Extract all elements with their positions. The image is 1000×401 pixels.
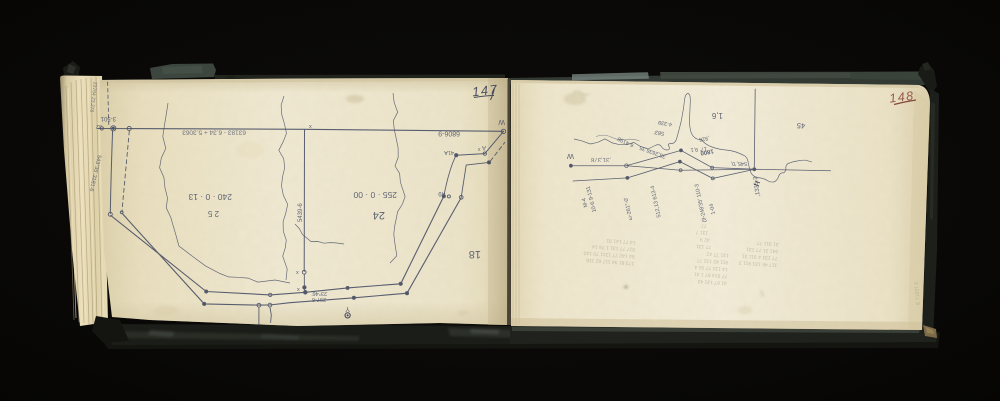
svg-text:W: W [566, 152, 574, 161]
svg-text:23°46′: 23°46′ [312, 290, 327, 296]
svg-text:,31,378: ,31,378 [590, 156, 611, 162]
svg-text:24: 24 [373, 209, 385, 221]
svg-text:Y: Y [345, 305, 350, 312]
svg-text:131 7: 131 7 [695, 229, 708, 236]
svg-text:1,6: 1,6 [711, 111, 723, 120]
svg-text:2 5: 2 5 [207, 209, 219, 218]
svg-text:545,′0,: 545,′0, [730, 160, 747, 166]
svg-text:77 131: 77 131 [696, 243, 712, 250]
svg-text:32: 32 [96, 123, 102, 129]
svg-text:255 · 0 · 00: 255 · 0 · 00 [353, 190, 397, 200]
svg-text:6806-9: 6806-9 [438, 130, 460, 137]
svg-text:x: x [296, 270, 299, 276]
svg-text:49: 49 [438, 190, 445, 196]
svg-text:x: x [309, 124, 312, 130]
svg-text:42 9: 42 9 [700, 236, 710, 243]
svg-text:41A: 41A [444, 149, 454, 155]
svg-text:W: W [498, 118, 505, 125]
svg-text:x: x [297, 287, 300, 293]
svg-text:147: 147 [471, 82, 499, 100]
svg-text:45: 45 [796, 121, 805, 131]
svg-text:240 · 0 · 13: 240 · 0 · 13 [188, 192, 232, 202]
svg-text:A: A [482, 144, 486, 150]
svg-text:77: 77 [701, 222, 707, 228]
svg-text:3-501: 3-501 [100, 115, 116, 121]
svg-text:5439-6: 5439-6 [298, 203, 304, 222]
svg-text:18: 18 [469, 248, 481, 260]
svg-text:63183 - 6.34 + 5.3063: 63183 - 6.34 + 5.3063 [182, 129, 246, 136]
svg-text:297-6: 297-6 [312, 296, 326, 302]
